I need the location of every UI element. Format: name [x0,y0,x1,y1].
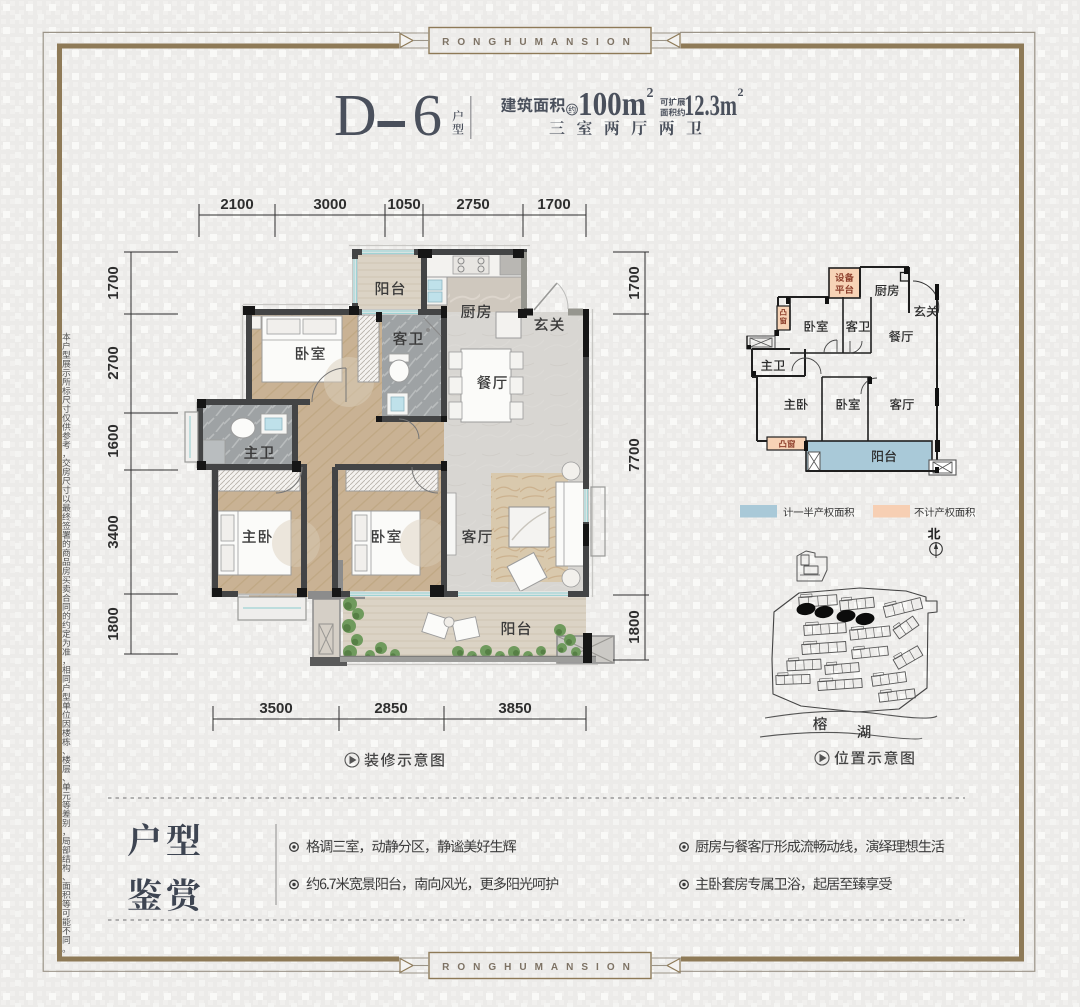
svg-text:1800: 1800 [105,607,122,640]
svg-text:RONGHUMANSION: RONGHUMANSION [442,962,638,973]
svg-text:1050: 1050 [387,196,420,213]
svg-text:3400: 3400 [105,515,122,548]
svg-text:3500: 3500 [259,700,292,717]
svg-text:3000: 3000 [313,196,346,213]
svg-text:2700: 2700 [105,346,122,379]
svg-text:2850: 2850 [374,700,407,717]
svg-text:1600: 1600 [105,424,122,457]
svg-text:1700: 1700 [626,266,643,299]
svg-text:2: 2 [647,86,654,101]
svg-text:RONGHUMANSION: RONGHUMANSION [442,37,638,48]
svg-text:2750: 2750 [456,196,489,213]
svg-text:6: 6 [413,82,443,148]
svg-text:1800: 1800 [626,610,643,643]
svg-text:100m: 100m [578,86,646,123]
svg-text:12.3m: 12.3m [684,89,737,122]
svg-text:D: D [334,82,377,148]
svg-text:2100: 2100 [220,196,253,213]
svg-text:1700: 1700 [537,196,570,213]
svg-text:7700: 7700 [626,438,643,471]
svg-text:3850: 3850 [498,700,531,717]
svg-text:2: 2 [738,85,744,99]
svg-text:1700: 1700 [105,266,122,299]
